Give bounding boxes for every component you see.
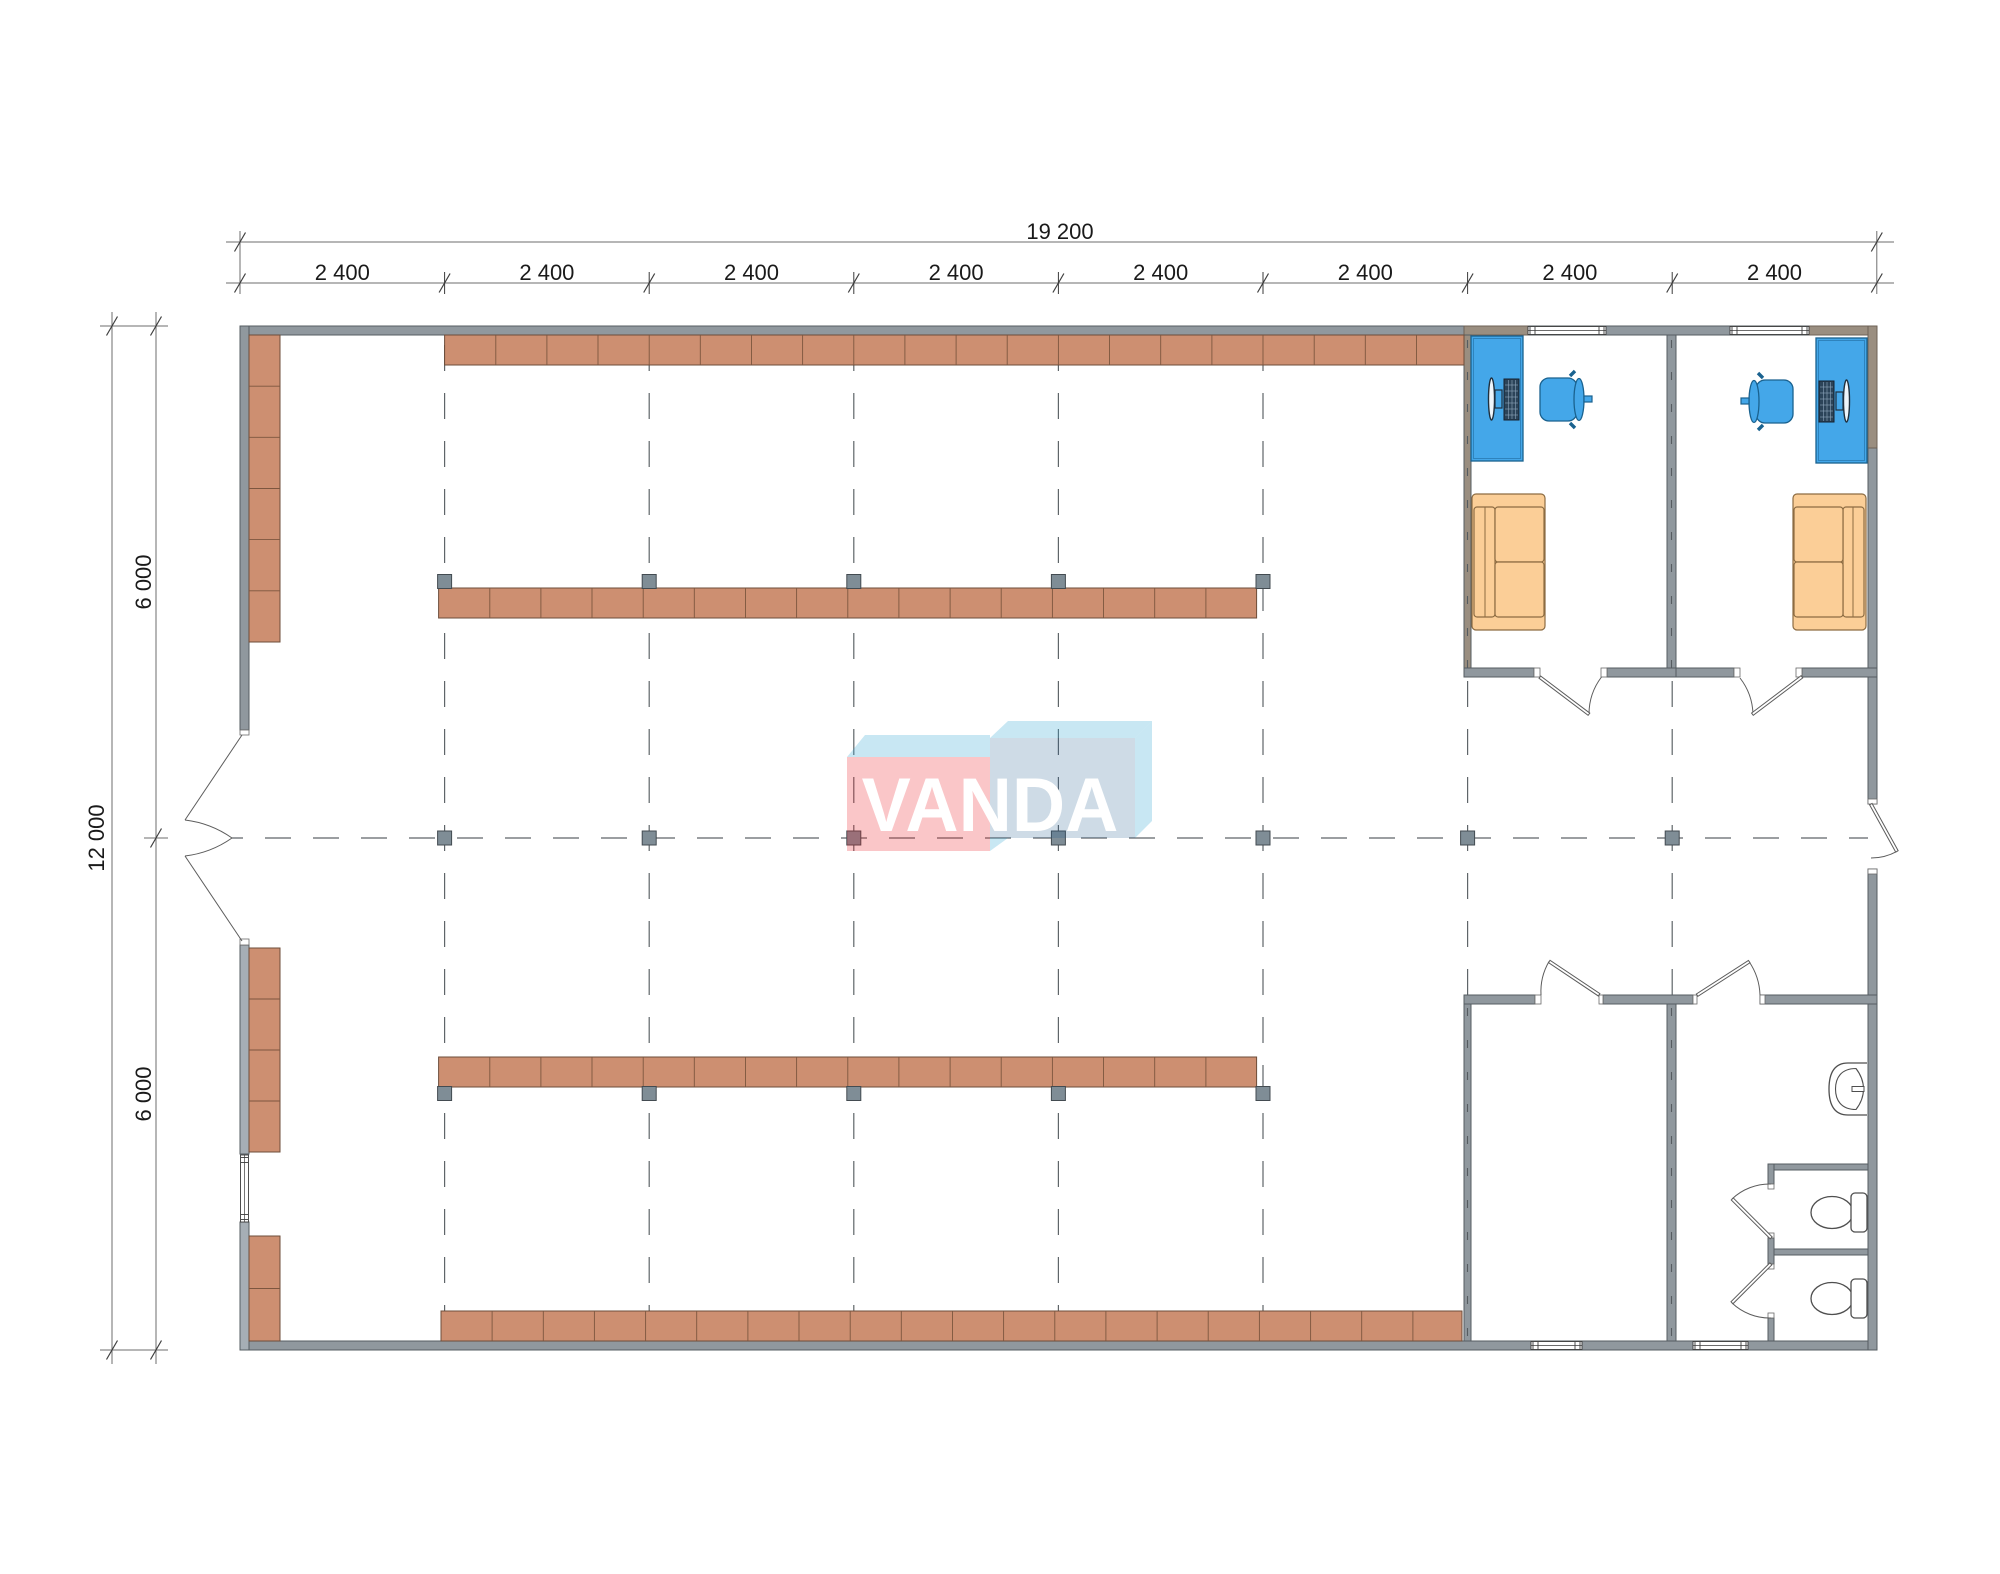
svg-text:VANDA: VANDA (862, 762, 1119, 847)
svg-text:12 000: 12 000 (84, 804, 109, 871)
svg-text:2 400: 2 400 (1747, 260, 1802, 285)
svg-text:2 400: 2 400 (1542, 260, 1597, 285)
svg-text:2 400: 2 400 (315, 260, 370, 285)
svg-text:2 400: 2 400 (724, 260, 779, 285)
svg-text:2 400: 2 400 (929, 260, 984, 285)
svg-text:19 200: 19 200 (1026, 219, 1093, 244)
svg-text:6 000: 6 000 (131, 1066, 156, 1121)
svg-text:6 000: 6 000 (131, 554, 156, 609)
svg-text:2 400: 2 400 (519, 260, 574, 285)
svg-text:2 400: 2 400 (1133, 260, 1188, 285)
svg-text:2 400: 2 400 (1338, 260, 1393, 285)
